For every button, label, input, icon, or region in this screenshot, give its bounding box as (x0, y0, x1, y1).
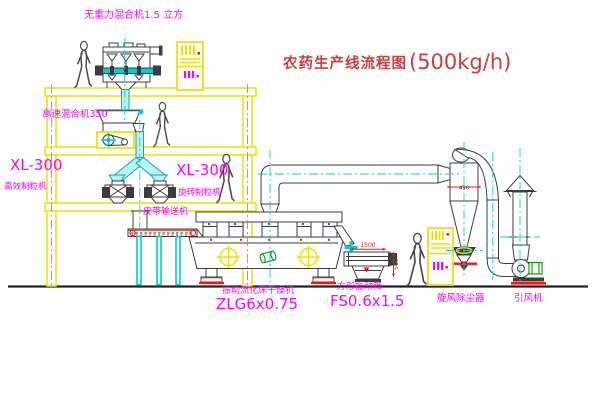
granulator-right (144, 181, 176, 203)
dim-screen-height: 500 (393, 258, 400, 270)
gravity-free-mixer (95, 43, 163, 90)
label-high-speed-mixer: 高速混合机350 (42, 110, 108, 120)
control-cabinet-1 (177, 42, 203, 90)
diagram-title: 农药生产线流程图 (500kg/h) (283, 47, 511, 77)
exhaust-duct (261, 165, 452, 212)
label-granulator-left-model: XL-300 (10, 158, 62, 173)
label-screen-model: FS0.6x1.5 (330, 294, 404, 309)
worker-figure-2 (154, 102, 170, 146)
worker-figure-4 (407, 233, 426, 285)
fluid-bed-dryer (189, 212, 354, 284)
dim-screen-length: 1500 (360, 242, 375, 249)
label-granulator-right-model: XL-300 (176, 163, 228, 178)
induced-draft-fan (511, 245, 546, 285)
control-cabinet-2 (428, 228, 453, 285)
granulator-left (102, 181, 134, 203)
label-screen-name: 方形振动筛 (337, 283, 382, 292)
diagram-title-capacity: (500kg/h) (409, 50, 511, 74)
label-fan: 引风机 (514, 294, 543, 304)
dim-cyclone-diameter: 450 (459, 186, 470, 192)
label-dryer-model: ZLG6x0.75 (216, 297, 298, 312)
label-granulator-left-name: 高效制粒机 (4, 183, 47, 192)
worker-figure-1 (75, 41, 92, 87)
pesticide-line-flow-diagram: 1500 500 450 农药生产线流程图 (500kg/h) 无重力混合机1.… (0, 0, 600, 403)
label-granulator-right-name: 旋转制粒机 (178, 189, 221, 198)
diagram-title-text: 农药生产线流程图 (283, 52, 407, 73)
label-gravity-mixer: 无重力混合机1.5 立方 (84, 11, 183, 21)
label-cyclone: 旋风除尘器 (437, 294, 485, 304)
label-belt-conveyor: 皮带输送机 (143, 208, 188, 217)
